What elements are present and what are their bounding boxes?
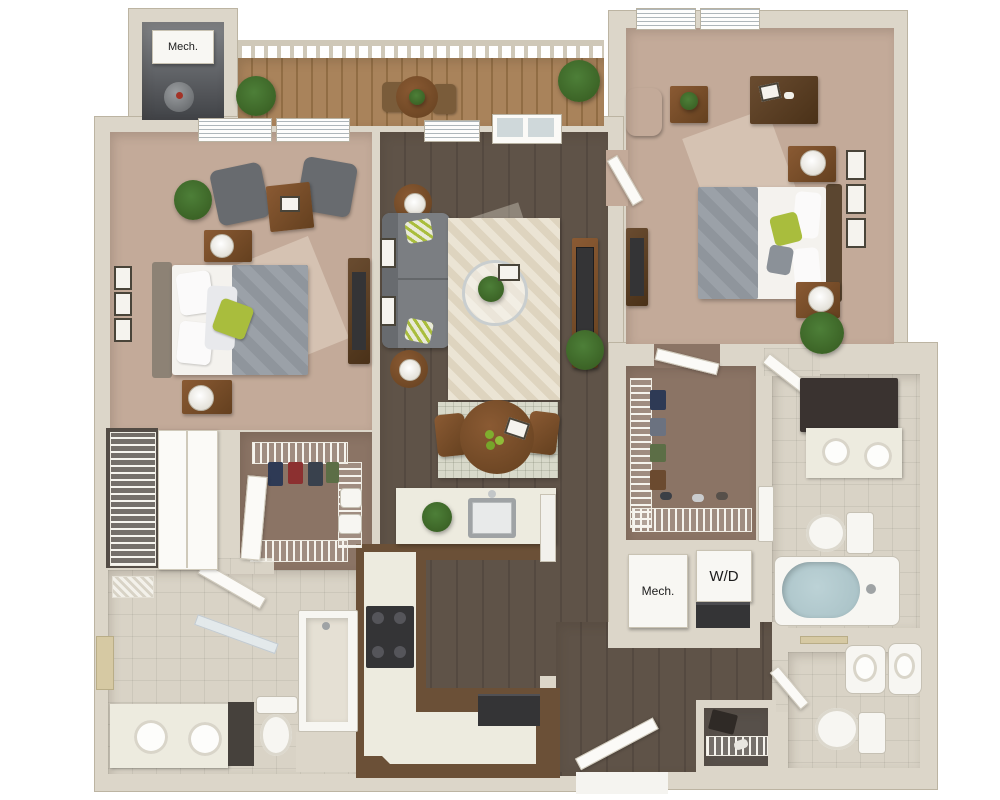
- table-lamp: [188, 385, 214, 411]
- hanging-clothes: [650, 390, 666, 410]
- closet2-shelf-left: [630, 378, 652, 528]
- hanging-clothes: [326, 462, 339, 483]
- linen-door-divider: [186, 430, 188, 568]
- closet1-drawer-box: [338, 514, 362, 534]
- stove-burner: [394, 646, 406, 658]
- mech-lower-door: Mech.: [628, 554, 688, 628]
- shoes: [692, 494, 704, 502]
- washer-dryer-unit: W/D: [696, 550, 752, 602]
- shoes: [660, 492, 672, 500]
- closet1-shelf-top: [252, 442, 348, 464]
- living-window: [424, 120, 480, 142]
- powder-sink-basin: [853, 654, 877, 682]
- picture-frame: [846, 184, 866, 214]
- linen-closet-shelves: [110, 432, 156, 566]
- front-door-threshold: [576, 772, 668, 794]
- bedroom1-side-table-book: [280, 196, 300, 212]
- picture-frame: [114, 292, 132, 316]
- bathtub-water: [782, 562, 860, 618]
- bathroom2-vanity-cabinet: [800, 378, 898, 432]
- bed2-accent-pillow: [766, 244, 794, 276]
- living-plant: [566, 330, 604, 370]
- water-heater-valve: [176, 92, 183, 99]
- closet2-shelf-bottom: [632, 508, 752, 532]
- bedroom2-dresser-desk: [750, 76, 818, 124]
- balcony-table-plant: [409, 89, 425, 105]
- shower-interior: [306, 618, 348, 722]
- bathroom2-wall-shelf: [758, 486, 774, 542]
- bedroom2-side-table-plant: [680, 92, 698, 110]
- mech-lower-label-text: Mech.: [642, 584, 675, 598]
- bedroom1-window-left: [198, 118, 272, 142]
- tv: [577, 248, 593, 334]
- bed2-duvet: [698, 187, 758, 299]
- picture-frame: [380, 296, 396, 326]
- picture-frame: [846, 150, 866, 180]
- mech-upper-label-text: Mech.: [168, 41, 198, 53]
- picture-frame: [114, 318, 132, 342]
- powder-towel-bar: [800, 636, 848, 644]
- sofa-back: [382, 213, 398, 348]
- bathroom1-sink: [134, 720, 168, 754]
- table-lamp: [808, 286, 834, 312]
- floor-plan: Mech.: [0, 0, 1000, 800]
- bathroom1-sink: [188, 722, 222, 756]
- washer-dryer-front: [696, 602, 750, 628]
- sofa-pillow: [404, 218, 433, 244]
- bathroom1-niche-shelf: [112, 576, 154, 598]
- balcony-plant-right: [558, 60, 600, 102]
- picture-frame: [380, 238, 396, 268]
- dining-centerpiece-apple: [486, 441, 495, 450]
- wall-powder-left-upper: [772, 622, 788, 660]
- toilet-bowl: [260, 714, 292, 756]
- hanging-clothes: [650, 418, 666, 436]
- hanging-clothes: [650, 444, 666, 462]
- coffee-table-book: [498, 264, 520, 281]
- stove-burner: [372, 612, 384, 624]
- bedroom1-dresser-tv: [352, 272, 366, 350]
- bedroom2-armchair: [626, 88, 662, 136]
- bathroom2-sink: [864, 442, 892, 470]
- bedroom1-plant: [174, 180, 212, 220]
- towel-bar: [96, 636, 114, 690]
- toilet-tank: [846, 512, 874, 554]
- powder-sink-basin: [894, 653, 915, 679]
- bedroom1-window-right: [276, 118, 350, 142]
- bedroom2-window-right: [700, 8, 760, 30]
- balcony-french-door-glass: [497, 118, 523, 137]
- bathroom1-vanity-cabinet: [228, 702, 254, 766]
- refrigerator: [478, 694, 540, 726]
- hanging-clothes: [308, 462, 323, 486]
- closet1-drawer-box: [340, 488, 362, 508]
- leaning-mirror: [540, 494, 556, 562]
- linen-closet-door: [158, 430, 218, 570]
- closet1-shelf-bottom: [250, 540, 348, 562]
- sofa-cushion-line: [398, 278, 448, 280]
- dining-centerpiece-apple: [495, 436, 504, 445]
- dining-centerpiece-apple: [485, 430, 494, 439]
- toilet-bowl: [806, 514, 846, 552]
- stove-burner: [394, 612, 406, 624]
- picture-frame: [846, 218, 866, 248]
- hanging-clothes: [288, 462, 303, 484]
- stove-burner: [372, 646, 384, 658]
- table-lamp: [399, 359, 421, 381]
- wall-bath1-southeast-block: [296, 732, 358, 772]
- bathroom2-sink: [822, 438, 850, 466]
- toilet-bowl: [815, 708, 859, 750]
- bedroom2-plant: [800, 312, 844, 354]
- balcony-plant-left: [236, 76, 276, 116]
- bedroom2-window-left: [636, 8, 696, 30]
- shower-head: [322, 622, 330, 630]
- washer-dryer-label-text: W/D: [709, 568, 738, 585]
- bed1-headboard: [152, 262, 172, 378]
- kitchen-faucet: [488, 490, 496, 498]
- kitchen-sink-basin: [472, 502, 512, 534]
- bathtub-faucet: [866, 584, 876, 594]
- bedroom2-tv: [630, 238, 644, 296]
- mech-upper-label: Mech.: [152, 30, 214, 64]
- kitchen-island-plant: [422, 502, 452, 532]
- toilet-tank: [256, 696, 298, 714]
- hanging-clothes: [268, 462, 283, 486]
- table-lamp: [800, 150, 826, 176]
- table-lamp: [210, 234, 234, 258]
- hanging-clothes: [650, 470, 666, 490]
- table-lamp: [404, 193, 426, 215]
- desk-item: [784, 92, 794, 99]
- bedroom1-armchair: [209, 161, 272, 227]
- toilet-tank: [858, 712, 886, 754]
- shoes: [716, 492, 728, 500]
- balcony-french-door-glass: [528, 118, 554, 137]
- picture-frame: [114, 266, 132, 290]
